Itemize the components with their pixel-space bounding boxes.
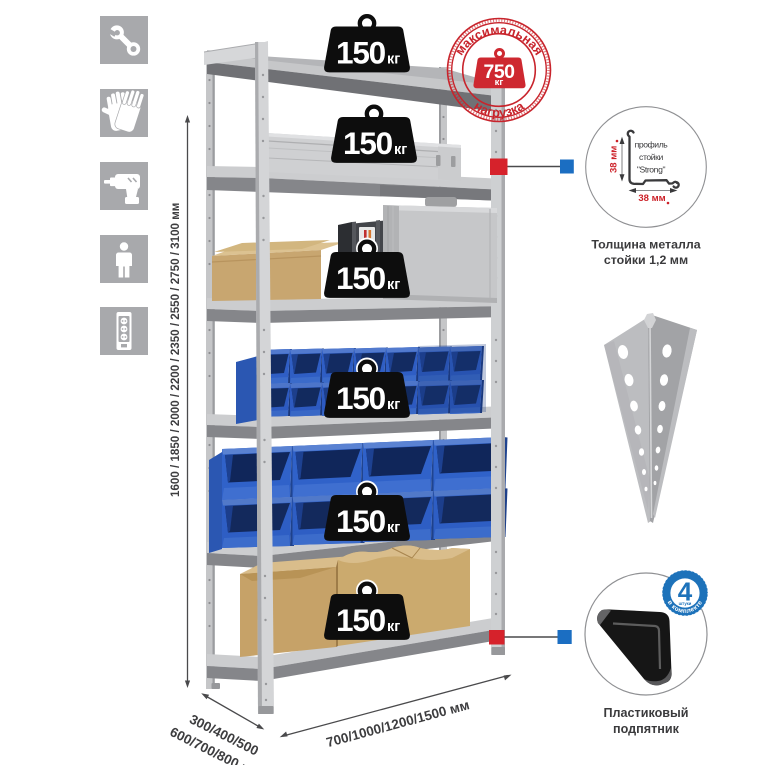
- svg-text:"Strong": "Strong": [637, 165, 666, 175]
- svg-text:кг: кг: [495, 77, 504, 88]
- svg-text:кг: кг: [387, 520, 400, 536]
- svg-text:стойки: стойки: [639, 152, 663, 162]
- svg-text:150: 150: [336, 602, 386, 638]
- svg-text:Пластиковый: Пластиковый: [603, 706, 688, 720]
- svg-text:1600 / 1850 / 2000 / 2200 / 23: 1600 / 1850 / 2000 / 2200 / 2350 / 2550 …: [169, 203, 182, 497]
- svg-text:кг: кг: [394, 142, 407, 158]
- svg-text:150: 150: [336, 260, 386, 296]
- svg-text:150: 150: [336, 503, 386, 539]
- svg-text:Толщина металла: Толщина металла: [591, 238, 700, 252]
- svg-text:38 мм: 38 мм: [638, 193, 665, 204]
- svg-text:стойки 1,2 мм: стойки 1,2 мм: [604, 253, 688, 267]
- svg-text:профиль: профиль: [635, 140, 669, 150]
- svg-text:подпятник: подпятник: [613, 722, 680, 736]
- svg-text:кг: кг: [387, 619, 400, 635]
- svg-text:штуки: штуки: [679, 601, 692, 606]
- svg-text:150: 150: [336, 35, 386, 71]
- svg-text:150: 150: [343, 125, 393, 161]
- svg-text:кг: кг: [387, 277, 400, 293]
- svg-text:кг: кг: [387, 397, 400, 413]
- svg-text:38 мм: 38 мм: [609, 146, 620, 173]
- svg-text:кг: кг: [387, 52, 400, 68]
- svg-text:150: 150: [336, 380, 386, 416]
